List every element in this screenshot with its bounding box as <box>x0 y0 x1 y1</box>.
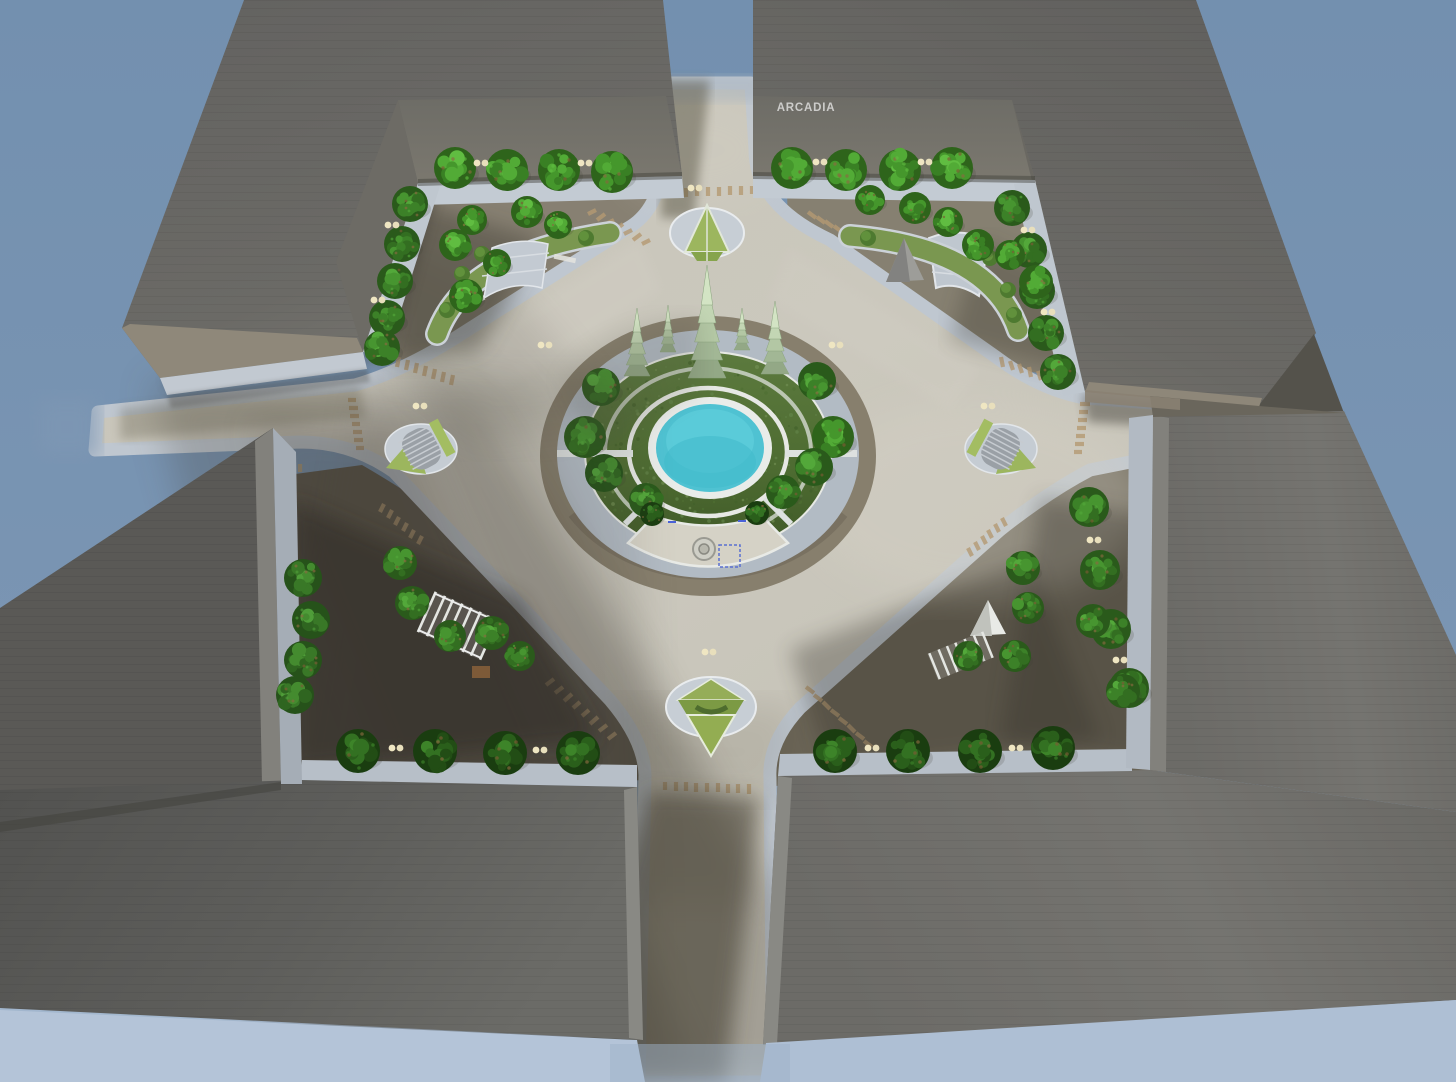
svg-text:ARCADIA: ARCADIA <box>777 102 836 114</box>
